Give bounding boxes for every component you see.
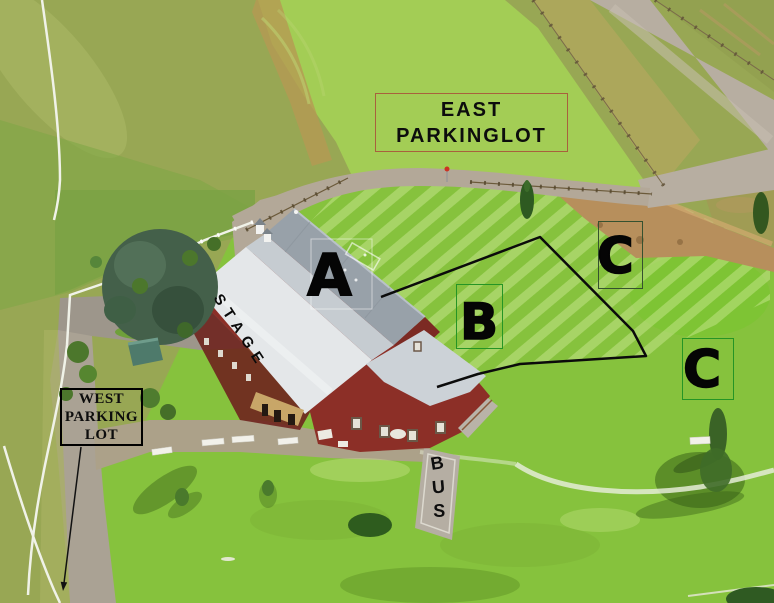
east-parking-lot-label: EAST PARKINGLOT	[375, 93, 568, 152]
cupola	[256, 224, 264, 234]
section-c-lower-label: C	[683, 344, 721, 396]
section-a-label: A	[307, 246, 352, 304]
section-b-label: B	[460, 297, 498, 347]
west-parking-lot-label: WEST PARKING LOT	[60, 388, 143, 446]
bus-letter-b: B	[429, 453, 445, 475]
bus-letter-u: U	[431, 477, 446, 498]
venue-map: EAST PARKINGLOT WEST PARKING LOT STAGE A…	[0, 0, 774, 603]
west-lot-line1: WEST	[79, 390, 124, 408]
east-lot-line2: PARKINGLOT	[396, 126, 547, 146]
east-lot-line1: EAST	[441, 100, 502, 120]
cupola	[264, 233, 271, 242]
aerial-photo-illustration	[0, 0, 774, 603]
pine-tree	[753, 192, 769, 234]
west-lot-line2: PARKING	[65, 408, 138, 426]
large-tree	[102, 229, 218, 345]
west-lot-line3: LOT	[85, 426, 118, 444]
bus-area-label: B U S	[426, 454, 449, 522]
bus-letter-s: S	[433, 502, 445, 522]
bush	[348, 513, 392, 537]
section-c-upper-label: C	[597, 231, 634, 281]
